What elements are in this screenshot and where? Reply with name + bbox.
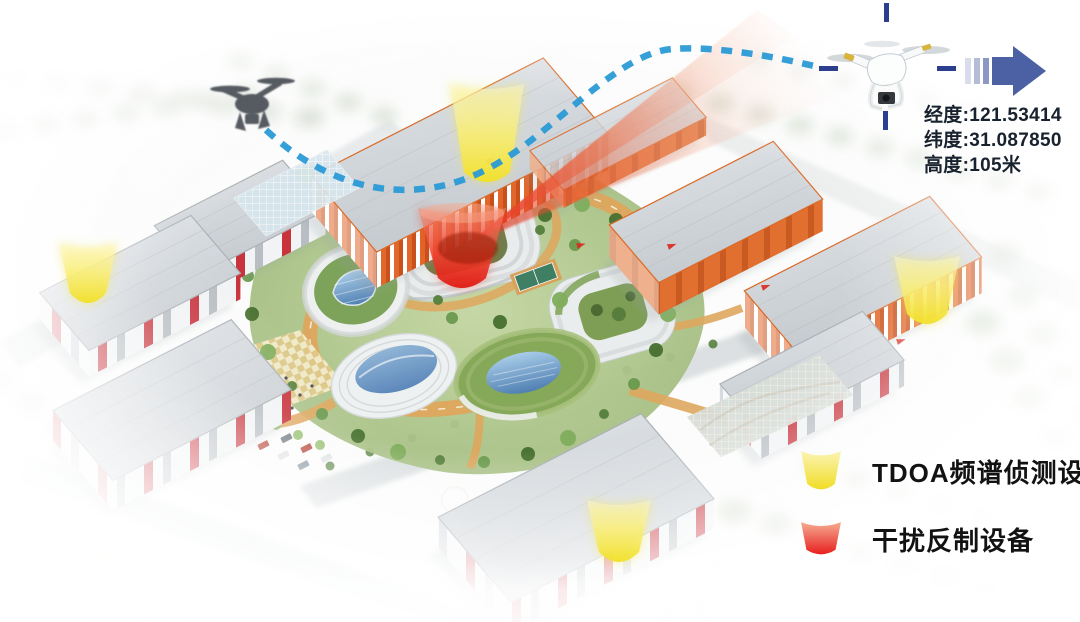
- flight-direction-arrow-icon: [965, 46, 1046, 96]
- red-cone-icon: [798, 519, 844, 559]
- drone-defense-schematic: 经度:121.53414 纬度:31.087850 高度:105米 TDOA频谱…: [0, 0, 1080, 622]
- legend: TDOA频谱侦测设备 干扰反制设备: [798, 447, 1080, 559]
- legend-item-tdoa: TDOA频谱侦测设备: [798, 447, 1080, 495]
- telemetry-latitude: 纬度:31.087850: [924, 128, 1062, 153]
- intruder-drone-icon: [210, 78, 295, 131]
- telemetry-altitude: 高度:105米: [924, 153, 1062, 178]
- yellow-cone-icon: [798, 447, 844, 495]
- legend-label-tdoa: TDOA频谱侦测设备: [872, 453, 1080, 490]
- legend-label-jammer: 干扰反制设备: [872, 521, 1034, 558]
- target-drone-icon: [827, 41, 950, 109]
- legend-item-jammer: 干扰反制设备: [798, 519, 1080, 559]
- telemetry-longitude: 经度:121.53414: [924, 103, 1062, 128]
- drone-telemetry: 经度:121.53414 纬度:31.087850 高度:105米: [924, 103, 1062, 178]
